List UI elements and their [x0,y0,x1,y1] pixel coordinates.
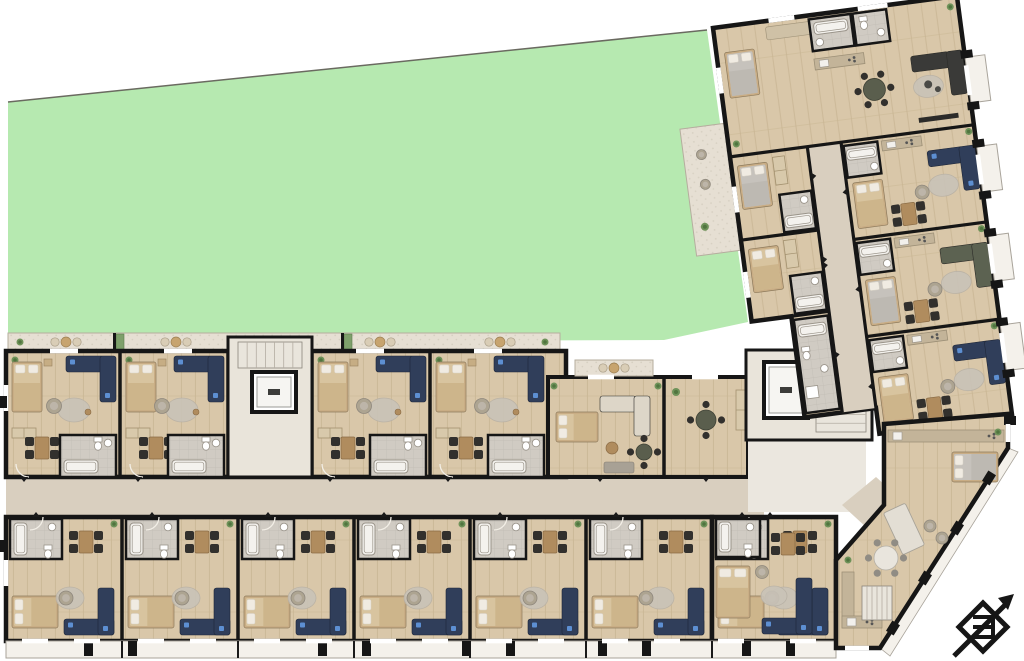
dining-chair [301,531,310,540]
bed-pillow [882,280,892,289]
bed-pillow [754,166,764,175]
side-table [513,409,519,415]
window [74,639,100,644]
dining-table [669,531,683,553]
toilet-tank [392,545,400,550]
bed-blanket [742,181,771,208]
dining-chair [417,544,426,553]
balcony-pier [0,540,7,552]
bed [12,362,42,412]
bed-pillow [29,365,39,373]
bed [556,412,598,442]
armchair-cushion [939,535,946,542]
dining-chair [808,544,817,553]
terrace-chair [507,338,515,346]
nightstand [350,359,358,366]
bed-blanket [729,68,758,96]
balcony-pier [642,641,651,656]
plant-icon [846,558,850,562]
terrace-divider [341,333,344,351]
dining-chair [891,539,898,546]
terrace-table [171,337,181,347]
sofa-accent-pillow [219,626,224,631]
counter-sink [847,618,856,626]
terrace-table [495,337,505,347]
bed [748,245,783,293]
terrace-set [599,363,629,373]
dining-chair [449,450,458,459]
washer [806,385,819,398]
sink [628,523,636,531]
balcony-pier [995,317,1008,326]
planter-box [116,334,124,350]
armchair-cushion [927,523,934,530]
terrace-set [365,337,395,347]
bed-blanket [147,598,172,626]
dining-chair [917,214,927,224]
bed-pillow [363,600,371,611]
bed-blanket [495,598,520,626]
side-table [193,409,199,415]
sink [870,162,879,171]
armchair-cushion [526,594,534,602]
armchair-cushion [478,402,486,410]
dining-chair [905,314,915,324]
dining-chair [687,416,694,423]
sink [746,523,754,531]
dining-chair [865,554,872,561]
bed-blanket [574,414,596,440]
armchair-cushion [360,402,368,410]
bed-pillow [869,282,879,291]
balcony-pier [1004,416,1016,425]
coffee-table [606,442,618,454]
sofa-accent-pillow [415,393,420,398]
dining-chair [891,204,901,214]
plant-icon [319,358,323,362]
window [22,639,48,644]
bed-pillow [741,52,751,61]
sink [512,523,520,531]
balcony-pier [990,279,1003,288]
bed [737,162,772,210]
dining-chair [139,450,148,459]
sofa-accent-pillow [416,623,421,628]
armchair-cushion [158,402,166,410]
dining-table [696,410,716,430]
bed-blanket [128,383,154,410]
dining-chair [928,298,938,308]
dining-chair [417,531,426,540]
dining-chair [50,437,59,446]
bed-blanket [870,296,899,324]
dining-chair [640,435,647,442]
bed-blanket [753,264,782,291]
dining-chair [94,531,103,540]
toilet-tank [276,545,284,550]
dining-table [427,531,441,553]
corridor [6,477,764,517]
sofa-accent-pillow [498,360,503,365]
window [370,639,396,644]
plant-icon [826,522,830,526]
dining-chair [356,450,365,459]
sofa-accent-pillow [105,393,110,398]
window [692,375,718,380]
window [422,639,448,644]
terrace-table [61,337,71,347]
stove-burner [871,622,874,625]
bed-pillow [453,365,463,373]
armchair-cushion [410,594,418,602]
planter-box [344,334,352,350]
plant-icon [552,384,556,388]
bed [865,276,901,326]
sofa-accent-pillow [380,360,385,365]
stairs [238,342,302,368]
plant-icon [702,522,706,526]
dining-chair [50,450,59,459]
dining-chair [69,544,78,553]
sofa-accent-pillow [68,623,73,628]
bed-pillow [247,600,255,611]
window [1006,424,1011,442]
terrace-chair [51,338,59,346]
dining-chair [69,531,78,540]
counter-sink [893,432,902,440]
dining-chair [930,311,940,321]
dining-chair [331,437,340,446]
dining-chair [640,462,647,469]
sofa-accent-pillow [957,348,963,354]
sofa-accent-pillow [213,393,218,398]
bed-pillow [247,614,255,625]
dining-chair [771,546,780,555]
bed-pillow [131,614,139,625]
side-table [395,409,401,415]
balcony-pier [979,190,992,199]
sofa-seat [634,396,650,436]
dining-chair [326,544,335,553]
dining-chair [718,416,725,423]
bed-pillow [765,249,775,258]
floor-plan-svg [0,0,1024,661]
balcony-pier [0,396,7,408]
window [190,639,216,644]
elevator-mechanism [780,387,792,393]
window [306,639,332,644]
sofa-accent-pillow [70,360,75,365]
dining-chair [356,437,365,446]
bed-pillow [955,469,963,479]
stove-burner [993,436,996,439]
bed-pillow [15,614,23,625]
toilet-tank [624,545,632,550]
terrace-table [375,337,385,347]
sofa-accent-pillow [968,180,974,186]
rug [368,398,400,422]
balcony-pier [462,641,471,656]
bed [716,566,750,618]
bed-blanket [883,393,912,421]
dining-table [195,531,209,553]
elevator-mechanism [268,389,280,395]
plant-icon [127,358,131,362]
lawn-area [8,30,748,342]
sofa-bench [604,462,634,473]
bed-pillow [130,365,140,373]
dining-chair [771,533,780,542]
bed [476,596,522,628]
dining-table [543,531,557,553]
dining-chair [874,539,881,546]
bed [128,596,174,628]
dining-chair [25,437,34,446]
window [486,639,512,644]
bathroom [852,9,890,45]
rug [486,398,518,422]
plant-icon [13,358,17,362]
toilet-bowl [404,442,411,450]
terrace-chair [183,338,191,346]
terrace-set [51,337,81,347]
dining-chair [185,531,194,540]
bed-pillow [479,600,487,611]
dining-chair [796,533,805,542]
bed [878,374,914,424]
dining-table [901,202,918,226]
counter-sink [912,335,922,342]
armchair-cushion [758,568,765,575]
dining-chair [659,544,668,553]
dining-chair [326,531,335,540]
window [4,560,9,586]
toilet-bowl [44,550,51,558]
plant-icon [460,522,464,526]
dining-chair [94,544,103,553]
dining-table [459,437,473,459]
bed-pillow [559,429,567,439]
bed [318,362,348,412]
sofa-accent-pillow [184,623,189,628]
toilet-bowl [624,550,631,558]
sofa-accent-pillow [931,153,937,159]
bathtub [719,522,731,552]
bed-pillow [143,365,153,373]
bed-blanket [320,383,346,410]
counter-top [888,430,1004,442]
plant-icon [674,390,678,394]
plant-icon [344,522,348,526]
bed-pillow [869,183,879,192]
bed [126,362,156,412]
dining-chair [916,398,926,408]
sink [820,364,829,373]
nightstand [468,359,476,366]
sink [883,259,892,268]
partition-wall [120,517,124,641]
bed-pillow [728,54,738,63]
dining-chair [533,531,542,540]
dining-table [79,531,93,553]
bed-pillow [595,600,603,611]
sink [280,523,288,531]
sink [532,439,540,447]
bed-pillow [16,365,26,373]
counter-sink [819,59,829,67]
toilet-bowl [508,550,515,558]
dining-table [311,531,325,553]
dining-chair [796,546,805,555]
toilet-bowl [744,549,751,557]
counter-sink [899,238,909,245]
window [718,639,744,644]
sofa-accent-pillow [693,626,698,631]
dining-chair [474,437,483,446]
dining-table [913,299,930,323]
window [164,349,192,354]
armchair-cushion [50,402,58,410]
toilet-bowl [276,550,283,558]
bed-pillow [322,365,332,373]
window [790,639,816,644]
bed-blanket [438,383,464,410]
bed-blanket [379,598,404,626]
bed-pillow [741,167,751,176]
lawn [8,30,748,342]
plant-icon [112,522,116,526]
dining-table [149,437,163,459]
bed [436,362,466,412]
balcony-pier [128,641,137,656]
dining-chair [915,201,925,211]
counter-sink [886,141,896,148]
stairs-area [238,342,302,368]
bed-pillow [131,600,139,611]
rug [761,586,787,606]
dining-table [341,437,355,459]
stove-burner [866,621,869,624]
window [474,349,502,354]
plant-icon [576,522,580,526]
sofa-accent-pillow [567,626,572,631]
dining-chair [891,570,898,577]
terrace-set [161,337,191,347]
window [254,639,280,644]
sofa-accent-pillow [300,623,305,628]
bed-blanket [857,199,886,227]
partition-wall [428,351,432,477]
dining-chair [702,401,709,408]
dining-chair [654,448,661,455]
kitchen-counter [888,430,1004,442]
toilet-tank [160,545,168,550]
terrace-chair [365,338,373,346]
window [588,375,614,380]
plant-icon [228,522,232,526]
dining-chair [210,544,219,553]
bed-pillow [15,600,23,611]
nightstand [158,359,166,366]
sink [896,356,905,365]
balcony-pier [1002,369,1015,378]
dining-chair [442,531,451,540]
terrace-chair [387,338,395,346]
terrace-chair [485,338,493,346]
toilet-bowl [94,442,101,450]
nightstand [44,359,52,366]
balcony-pier [967,101,980,110]
dining-table [781,533,795,555]
terrace-chair [621,364,629,372]
dining-chair [903,301,913,311]
sofa-seat [600,396,636,412]
toilet-tank [202,437,210,442]
partition-wall [352,517,356,641]
dining-chair [900,554,907,561]
dining-chair [702,432,709,439]
bed-pillow [735,569,747,577]
rug [166,398,198,422]
sink [396,523,404,531]
terrace-divider [113,333,116,351]
bed [724,49,760,99]
bed-pillow [363,614,371,625]
toilet-tank [44,545,52,550]
floor-plan-page [0,0,1024,661]
plant-icon [18,340,22,344]
dining-table [636,444,652,460]
dining-chair [442,544,451,553]
armchair-cushion [62,594,70,602]
door-marker [766,512,774,517]
toilet-bowl [202,442,209,450]
dining-table [874,546,898,570]
terrace-chair [599,364,607,372]
dining-chair [659,531,668,540]
toilet-tank [94,437,102,442]
armchair-cushion [178,594,186,602]
window [654,639,680,644]
dining-table [35,437,49,459]
stairs [862,586,892,620]
sofa-accent-pillow [532,623,537,628]
sofa-accent-pillow [103,626,108,631]
dining-chair [941,395,951,405]
partition-wall [118,351,122,477]
toilet-tank [522,437,530,442]
bed-blanket [14,383,40,410]
dining-chair [533,544,542,553]
bed-pillow [955,456,963,466]
bed-blanket [611,598,636,626]
plant-icon [996,430,1000,434]
window [138,639,164,644]
rug [58,398,90,422]
balcony-pier [984,228,997,237]
partition-wall [236,517,240,641]
dining-chair [474,450,483,459]
toilet-bowl [392,550,399,558]
plant-icon [543,340,547,344]
bed-pillow [895,377,905,386]
dining-chair [808,531,817,540]
sofa-accent-pillow [801,625,806,630]
toilet-bowl [160,550,167,558]
compass-north-arrow-icon [954,594,1014,656]
dining-chair [449,437,458,446]
window [602,639,628,644]
